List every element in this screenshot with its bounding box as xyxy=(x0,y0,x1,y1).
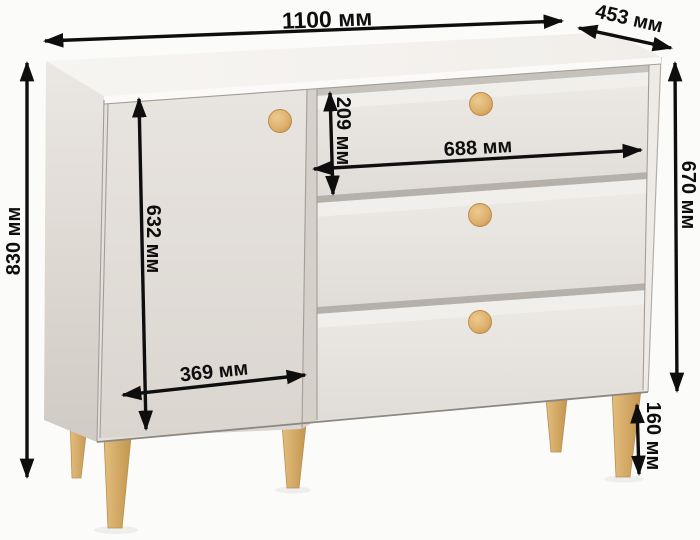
drawer-1-knob xyxy=(470,93,493,116)
dim-drawer-front-height-label: 209 мм xyxy=(332,97,354,166)
floor-shadows xyxy=(94,476,644,535)
dim-leg-height: 160 мм xyxy=(637,402,664,474)
door-knob xyxy=(269,110,292,133)
cabinet-body xyxy=(44,32,661,442)
drawer-2-knob xyxy=(469,204,492,227)
diagram-canvas: 1100 мм 453 мм 830 мм 632 мм 209 мм 688 … xyxy=(0,0,700,540)
dim-overall-width: 1100 мм xyxy=(45,4,562,41)
dim-body-height-label: 670 мм xyxy=(677,161,699,230)
dim-drawer-width-label: 688 мм xyxy=(443,135,513,161)
dim-overall-width-label: 1100 мм xyxy=(281,4,372,34)
dim-leg-height-label: 160 мм xyxy=(642,402,664,471)
dim-door-height-label: 632 мм xyxy=(142,205,164,274)
dim-overall-height: 830 мм xyxy=(3,63,27,477)
dimension-diagram: 1100 мм 453 мм 830 мм 632 мм 209 мм 688 … xyxy=(0,0,700,540)
drawer-3-knob xyxy=(469,311,492,334)
leg-back-right xyxy=(546,399,567,452)
leg-front-left xyxy=(104,437,131,528)
leg-center xyxy=(282,424,306,488)
dim-body-height: 670 мм xyxy=(675,63,699,391)
dim-overall-height-label: 830 мм xyxy=(3,207,25,276)
side-panel-left xyxy=(44,61,104,442)
